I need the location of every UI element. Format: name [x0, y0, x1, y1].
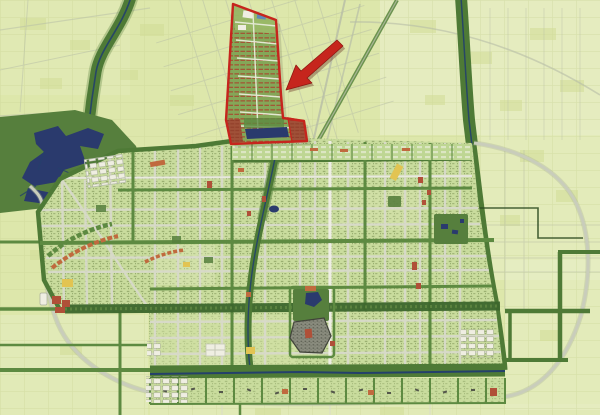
south-district-row [150, 378, 505, 404]
old-town-temple-block [305, 329, 313, 339]
map-canvas [0, 0, 600, 415]
river-pond [269, 206, 279, 213]
south-river-corridor [150, 370, 505, 374]
southeast-white-grid [461, 329, 494, 358]
northwest-industrial-cluster [84, 154, 126, 187]
highway-interchange [40, 293, 47, 305]
district-water-strip [245, 127, 289, 139]
east-park [434, 214, 468, 244]
master-plan-map [0, 0, 600, 415]
central-green-belt [65, 306, 500, 309]
south-industrial-cluster [146, 376, 188, 402]
